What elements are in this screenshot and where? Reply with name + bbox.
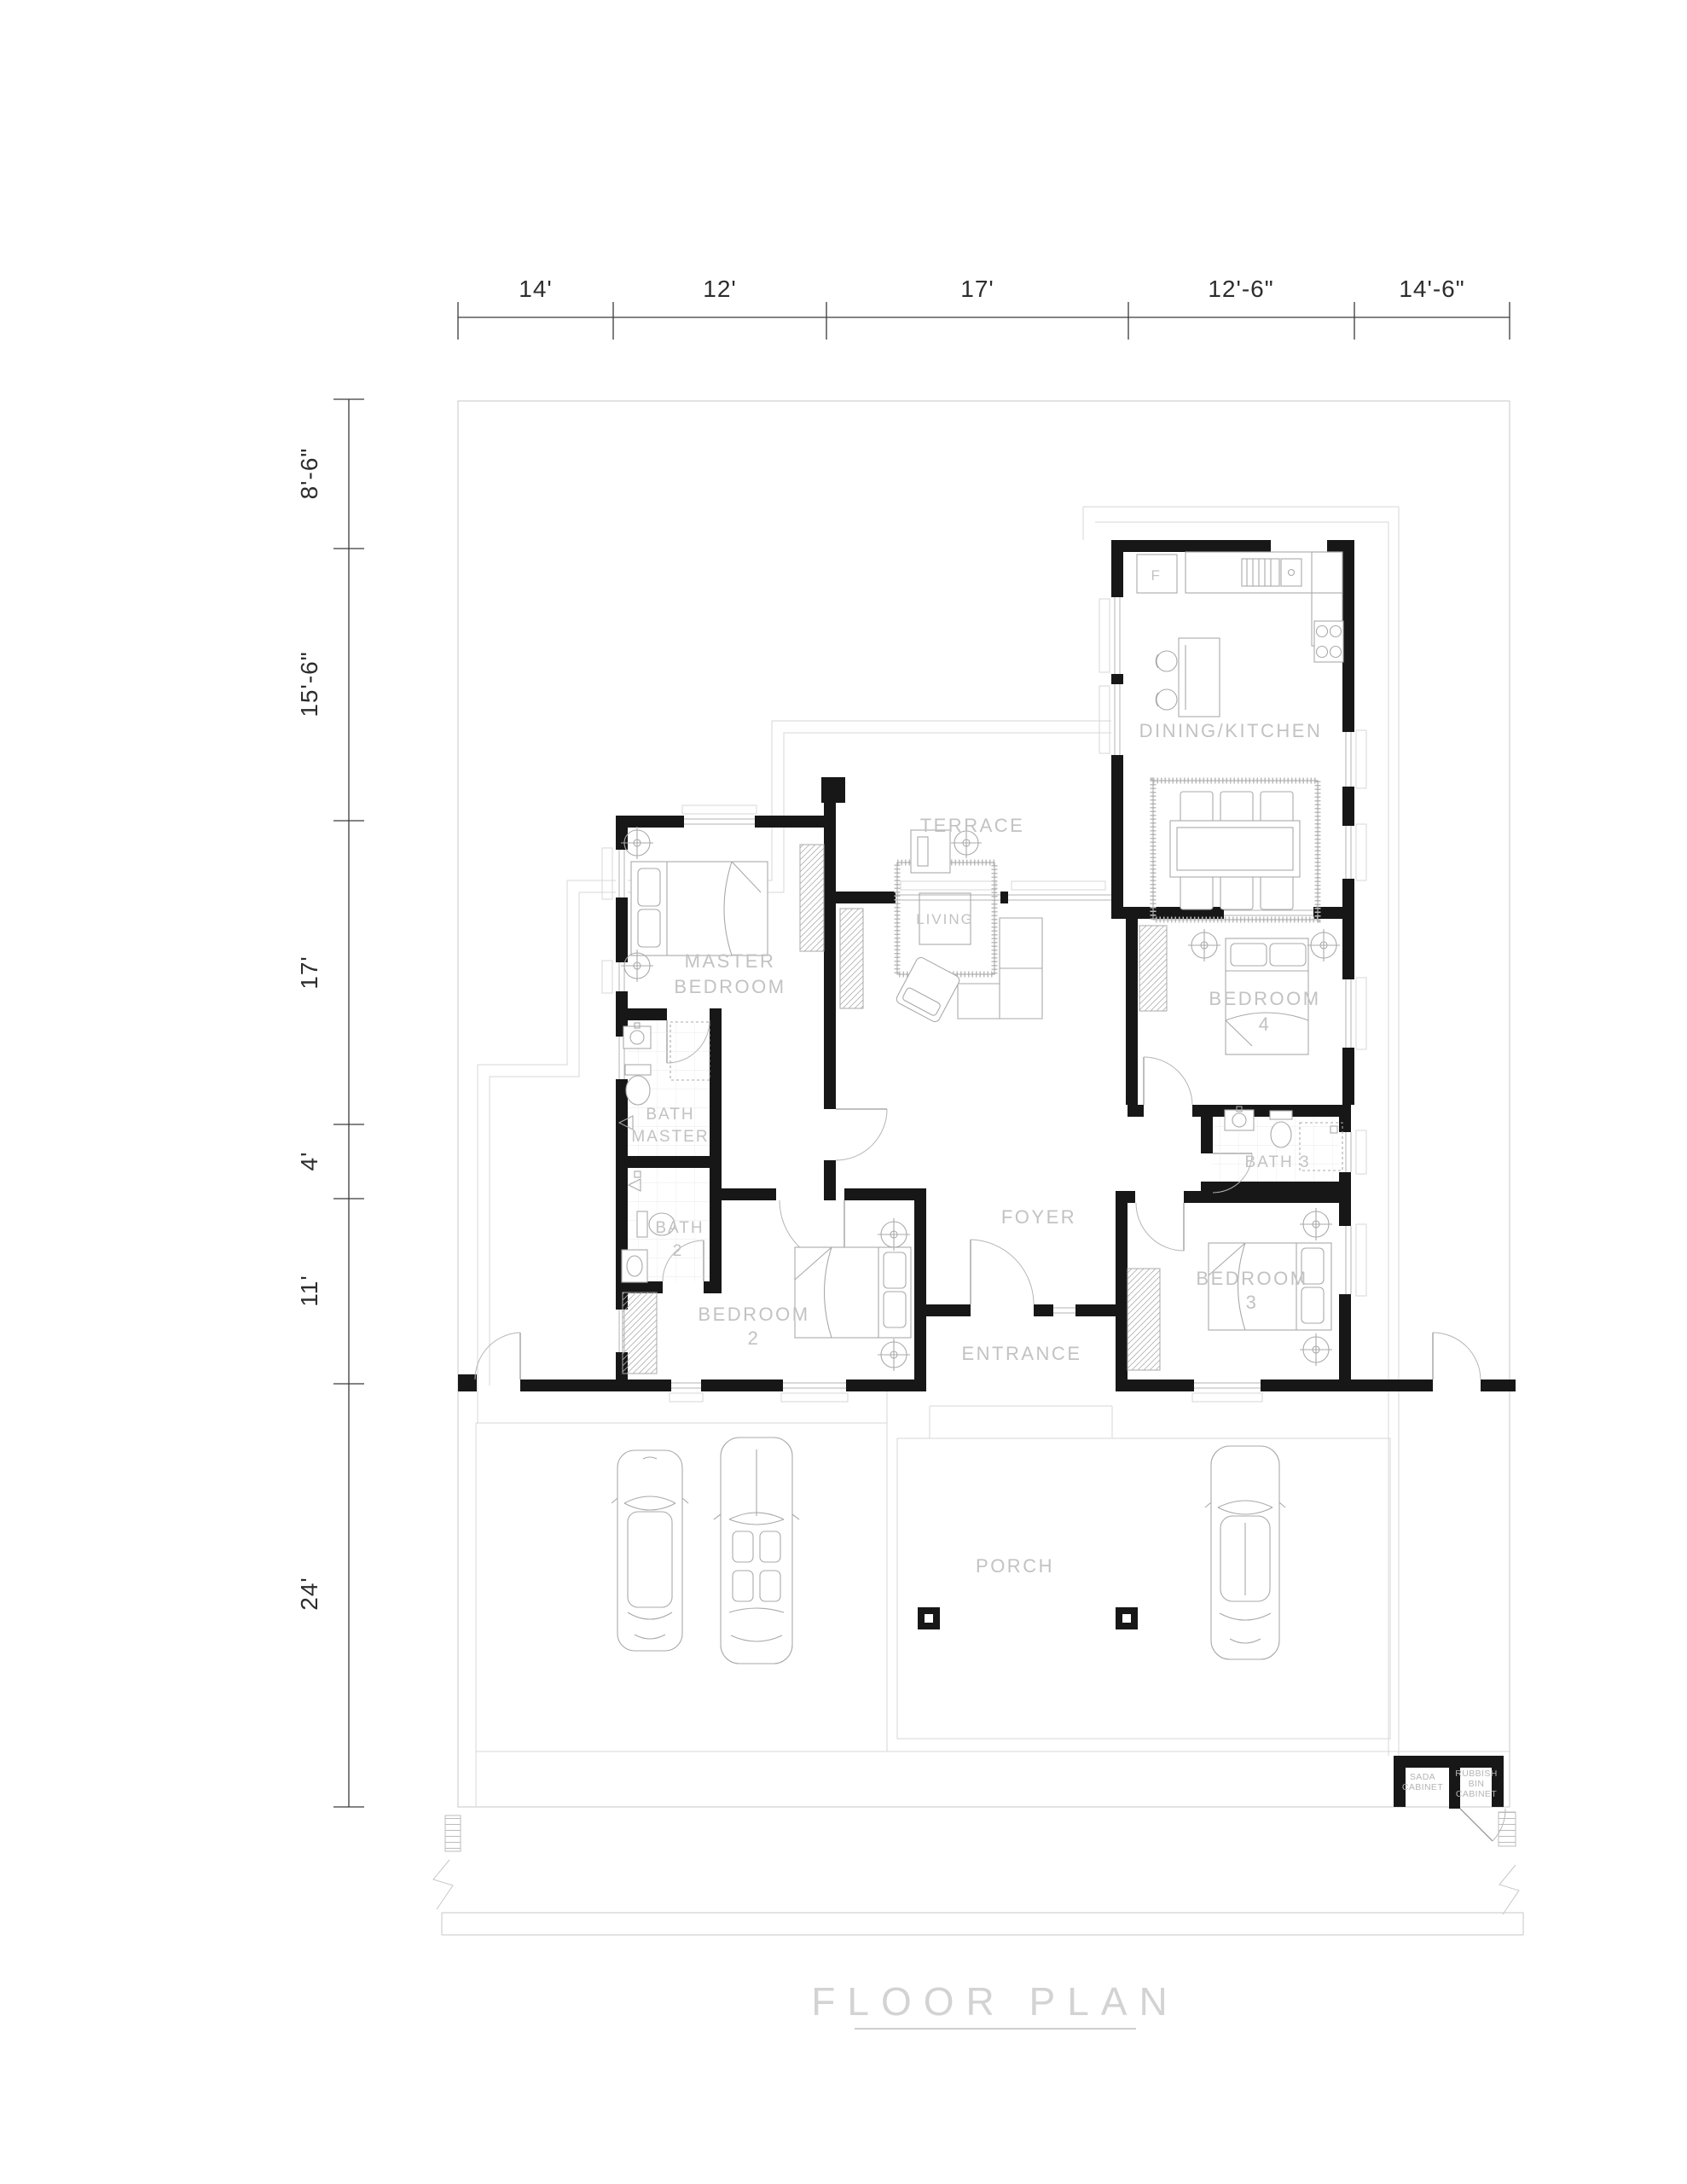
label-entrance: ENTRANCE [961,1343,1081,1364]
window-bed2-2 [781,1380,848,1402]
label-master-1: MASTER [685,950,776,972]
main-entrance-door [971,1240,1034,1304]
label-living: LIVING [916,911,974,927]
dim-left-15-6: 15'-6" [296,651,322,717]
dim-left-4: 4' [296,1152,322,1171]
window-bed4-right [1342,978,1366,1049]
label-porch: PORCH [976,1555,1054,1577]
bedroom4-door [1144,1057,1192,1105]
dim-left-11: 11' [296,1275,322,1306]
kitchen-fixtures [1137,552,1343,717]
label-bedroom3-2: 3 [1246,1292,1259,1313]
label-gas-cabinet-2: CABINET [1402,1782,1443,1792]
cars [612,1438,1285,1664]
label-fridge: F [1151,567,1162,584]
label-bedroom2-2: 2 [748,1327,761,1349]
bath-tiles [628,1020,1339,1281]
drawing-title: FLOOR PLAN [811,1979,1179,2029]
label-bedroom3-1: BEDROOM [1196,1268,1307,1289]
master-wardrobe [800,845,824,951]
label-bedroom4-1: BEDROOM [1209,988,1320,1009]
side-gate-right [1433,1333,1481,1380]
dimension-lines [333,302,1510,1807]
bedroom2-bed [795,1247,911,1338]
dim-top-12-6: 12'-6" [1208,276,1273,302]
break-line-right [1499,1865,1519,1914]
label-bath3: BATH 3 [1244,1153,1310,1171]
window-kitchen-right-2 [1342,824,1366,880]
window-terrace-2 [1008,881,1111,903]
label-bath-master-1: BATH [646,1106,694,1124]
label-bedroom4-2: 4 [1259,1014,1272,1035]
floor-plan-title: FLOOR PLAN [811,1979,1179,2024]
dining-set [1153,781,1318,920]
window-bath3-right [1342,1130,1366,1174]
plot-boundary [433,401,1523,1935]
window-bed2-1 [670,1380,703,1402]
label-bedroom2-1: BEDROOM [698,1304,809,1325]
dim-left-24: 24' [296,1577,322,1611]
window-kitchen-left-2 [1099,684,1123,755]
label-rubbish-cabinet-1: RUBBISH [1455,1769,1497,1779]
window-bed3-bottom [1192,1380,1262,1402]
window-master-left-1 [602,848,628,899]
dim-top-12: 12' [703,276,737,302]
bedroom2-wardrobe [623,1292,657,1374]
label-terrace: TERRACE [920,815,1025,836]
bedroom3-door [1136,1203,1184,1251]
floor-plan-drawing: 14' 12' 17' 12'-6" 14'-6" 8'-6" 15'-6" 1… [0,0,1687,2184]
label-rubbish-cabinet-3: CABINET [1456,1789,1497,1799]
dim-top-14: 14' [519,276,553,302]
break-line-left [433,1860,453,1909]
bedroom3-wardrobe [1128,1269,1160,1370]
label-bath2-1: BATH [655,1219,704,1237]
master-bed [631,862,768,955]
dim-top-17: 17' [960,276,994,302]
label-rubbish-cabinet-2: BIN [1469,1779,1485,1789]
label-gas-cabinet-1: SADA [1410,1772,1435,1782]
side-gate-left [475,1333,520,1380]
living-wardrobe [840,909,863,1008]
steps-left [445,1815,461,1851]
label-master-2: BEDROOM [674,976,786,997]
window-bed3-right [1342,1224,1366,1296]
label-bath-master-2: MASTER [631,1128,709,1146]
label-dining-kitchen: DINING/KITCHEN [1139,720,1323,741]
car-convertible [714,1438,799,1664]
car-suv [612,1450,688,1651]
master-suite-door [836,1109,887,1160]
window-master-top [682,805,757,828]
dim-top-14-6: 14'-6" [1399,276,1464,302]
dim-left-17: 17' [296,955,322,990]
window-terrace-1 [896,881,1000,903]
window-kitchen-right-1 [1342,730,1366,788]
porch-columns [918,1607,1138,1629]
window-entrance [1053,1304,1075,1316]
car-sedan [1205,1446,1285,1659]
floor-plan-canvas: 14' 12' 17' 12'-6" 14'-6" 8'-6" 15'-6" 1… [0,0,1687,2184]
label-bath2-2: 2 [673,1242,684,1260]
window-kitchen-left-1 [1099,597,1123,674]
label-foyer: FOYER [1001,1206,1076,1228]
bedroom4-wardrobe [1139,926,1167,1011]
dim-left-8-6: 8'-6" [296,448,322,500]
